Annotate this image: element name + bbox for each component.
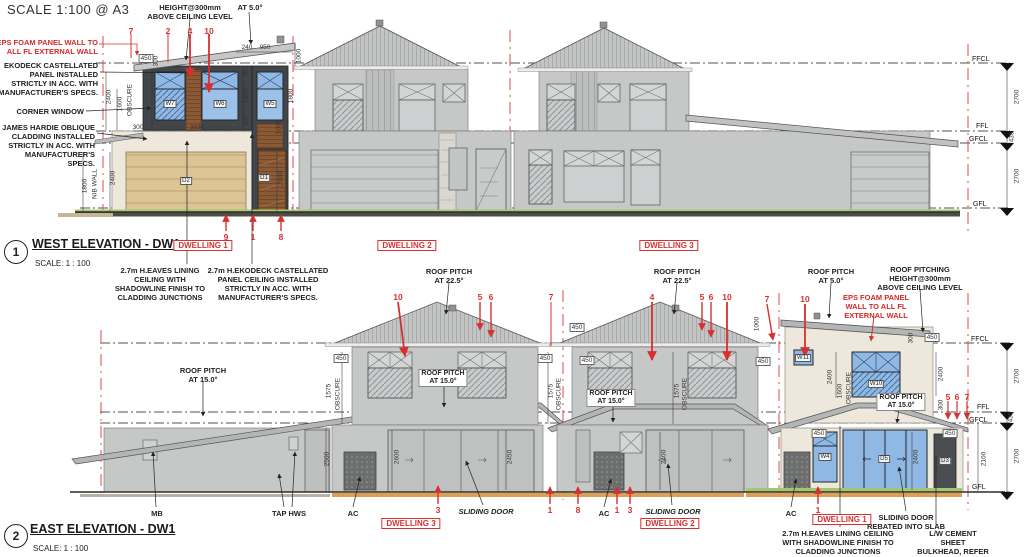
marker-number: 5	[478, 292, 483, 302]
marker-number: 7	[965, 392, 970, 402]
annotation-note: 2.7m H.EAVES LINING CEILING WITH SHADOWL…	[782, 529, 894, 556]
dimension-label: 300	[153, 56, 160, 67]
annotation-note: ROOF PITCH AT 22.5°	[426, 267, 472, 285]
level-label: FFL	[977, 404, 989, 411]
dwelling-label: DWELLING 1	[812, 514, 871, 525]
dimension-label: 1575	[326, 384, 333, 398]
dimension-label: 450	[812, 429, 827, 438]
dimension-label: 2700	[1014, 369, 1021, 383]
annotation-note: AC	[348, 509, 359, 518]
window-door-tag: W11	[795, 354, 811, 362]
annotation-note: AC	[786, 509, 797, 518]
dimension-label: 1800	[82, 179, 89, 193]
level-label: GFL	[972, 484, 986, 491]
dimension-label: 2400	[913, 450, 920, 464]
marker-number: 7	[765, 294, 770, 304]
dimension-label: 300	[243, 66, 250, 77]
window-door-tag: W7	[164, 100, 177, 108]
dimension-label: 1035	[276, 120, 283, 134]
dimension-label: 450	[580, 356, 595, 365]
marker-number: 4	[650, 292, 655, 302]
window-door-tag: D5	[878, 455, 890, 463]
dimension-label: 450	[756, 357, 771, 366]
elevation-drawing-sheet: SCALE 1:100 @ A3 1 WEST ELEVATION - DW1 …	[0, 0, 1027, 557]
dimension-label: OBSCURE	[556, 378, 563, 410]
dimension-label: 1000	[754, 317, 761, 331]
level-label: FFCL	[971, 336, 989, 343]
dimension-label: 300	[938, 400, 945, 411]
dimension-label: NIB WALL	[92, 169, 99, 199]
west-elevation-drawing	[58, 12, 1014, 264]
annotation-note: 2.7m H.EKODECK CASTELLATED PANEL CEILING…	[208, 266, 329, 302]
west-elevation-scale: SCALE: 1 : 100	[35, 259, 90, 268]
sheet-scale-header: SCALE 1:100 @ A3	[7, 2, 129, 17]
west-drawing-number: 1	[4, 240, 28, 264]
east-elevation-scale: SCALE: 1 : 100	[33, 544, 88, 553]
marker-number: 10	[204, 26, 213, 36]
annotation-note: ROOF PITCH AT 15.0°	[418, 369, 467, 387]
window-door-tag: D1	[258, 174, 270, 182]
marker-number: 1	[548, 505, 553, 515]
dimension-label: 450	[570, 323, 585, 332]
dimension-label: 435	[1009, 132, 1016, 143]
marker-number: 8	[576, 505, 581, 515]
annotation-note: JAMES HARDIE OBLIQUE CLADDING INSTALLED …	[2, 123, 95, 168]
dimension-label: 450	[538, 354, 553, 363]
level-label: GFL	[973, 201, 987, 208]
dimension-label: 2400	[110, 171, 117, 185]
dimension-label: 450	[925, 333, 940, 342]
dimension-label: 450	[943, 429, 958, 438]
dimension-label: 3830	[190, 124, 204, 131]
annotation-note: ROOF PITCH AT 15.0°	[180, 366, 226, 384]
dimension-label: OBSCURE	[335, 378, 342, 410]
annotation-note: AT 5.0°	[238, 3, 263, 12]
annotation-note: EKODECK CASTELLATED PANEL INSTALLED STRI…	[0, 61, 98, 97]
annotation-note: ROOF PITCH AT 22.5°	[654, 267, 700, 285]
dimension-label: 2600	[394, 450, 401, 464]
annotation-note: ROOF PITCHING HEIGHT@300mm ABOVE CEILING…	[877, 265, 962, 292]
annotation-note: ROOF PITCH AT 15.0°	[876, 393, 925, 411]
marker-number: 5	[946, 392, 951, 402]
marker-number: 6	[709, 292, 714, 302]
marker-number: 6	[489, 292, 494, 302]
dimension-label: 2100	[981, 452, 988, 466]
window-door-tag: W5	[264, 100, 277, 108]
level-label: FFL	[976, 123, 988, 130]
west-elevation-title: WEST ELEVATION - DW1	[32, 237, 180, 251]
dimension-label: 1800	[243, 89, 250, 103]
level-label: GFCL	[969, 417, 988, 424]
window-door-tag: W4	[819, 453, 832, 461]
annotation-note: EPS FOAM PANEL WALL TO ALL FL EXTERNAL W…	[0, 38, 98, 56]
dimension-label: 1000	[296, 49, 303, 63]
dwelling-2-west	[294, 20, 511, 211]
dimension-label: 435	[1008, 412, 1015, 423]
dimension-label: 1600	[837, 384, 844, 398]
dimension-label: OBSCURE	[127, 84, 134, 116]
marker-number: 1	[615, 505, 620, 515]
level-label: GFCL	[969, 136, 988, 143]
east-elevation-title: EAST ELEVATION - DW1	[30, 522, 175, 536]
dimension-label: OBSCURE	[846, 372, 853, 404]
annotation-note: L/W CEMENT SHEET BULKHEAD, REFER TO PLAN…	[916, 529, 990, 557]
dwelling-label: DWELLING 2	[640, 518, 699, 529]
dimension-label: 2700	[1014, 90, 1021, 104]
marker-number: 5	[700, 292, 705, 302]
marker-number: 4	[188, 26, 193, 36]
dimension-label: 450	[139, 54, 154, 63]
dimension-label: 300	[133, 124, 144, 131]
annotation-note: MB	[151, 509, 163, 518]
dimension-label: 300	[243, 116, 250, 127]
marker-number: 3	[436, 505, 441, 515]
level-label: FFCL	[972, 56, 990, 63]
dimension-label: 2450	[507, 450, 514, 464]
marker-number: 6	[955, 392, 960, 402]
marker-number: 7	[129, 26, 134, 36]
marker-number: 8	[279, 232, 284, 242]
annotation-note: ROOF PITCH AT 15.0°	[586, 389, 635, 407]
fixture-label: SLIDING DOOR	[645, 507, 700, 516]
dwelling-label: DWELLING 3	[639, 240, 698, 251]
fixture-label: SLIDING DOOR	[458, 507, 513, 516]
annotation-note: HEIGHT@300mm ABOVE CEILING LEVEL	[147, 3, 232, 21]
dimension-label: 240	[242, 44, 253, 51]
annotation-note: EPS FOAM PANEL WALL TO ALL FL EXTERNAL W…	[843, 293, 909, 320]
marker-number: 1	[251, 232, 256, 242]
annotation-note: 2.7m H.EAVES LINING CEILING WITH SHADOWL…	[115, 266, 205, 302]
window-door-tag: W10	[868, 380, 884, 388]
dimension-label: 950	[260, 44, 271, 51]
dimension-label: 1575	[548, 384, 555, 398]
marker-number: 10	[800, 294, 809, 304]
dwelling-label: DWELLING 1	[173, 240, 232, 251]
dwelling-label: DWELLING 2	[377, 240, 436, 251]
dimension-label: 300	[908, 333, 915, 344]
dwelling-3-east	[325, 302, 550, 492]
window-door-tag: W6	[214, 100, 227, 108]
marker-number: 10	[393, 292, 402, 302]
marker-number: 7	[549, 292, 554, 302]
dimension-label: 2700	[1014, 169, 1021, 183]
dwelling-label: DWELLING 3	[381, 518, 440, 529]
dimension-label: 2400	[661, 450, 668, 464]
marker-number: 10	[722, 292, 731, 302]
dimension-label: OBSCURE	[682, 378, 689, 410]
dimension-label: 2400	[938, 367, 945, 381]
east-drawing-number: 2	[4, 524, 28, 548]
dimension-label: 2400	[278, 171, 285, 185]
dimension-label: 1600	[117, 97, 124, 111]
dimension-label: 2500	[324, 452, 331, 466]
dimension-label: 2400	[106, 90, 113, 104]
annotation-note: CORNER WINDOW	[17, 107, 85, 116]
annotation-note: AC	[599, 509, 610, 518]
annotation-note: ROOF PITCH AT 5.0°	[808, 267, 854, 285]
dimension-label: 1800	[288, 89, 295, 103]
dimension-label: 450	[334, 354, 349, 363]
dwelling-3-west	[514, 22, 958, 211]
window-door-tag: D2	[180, 177, 192, 185]
dimension-label: 1575	[674, 384, 681, 398]
marker-number: 2	[166, 26, 171, 36]
window-door-tag: D3	[939, 457, 951, 465]
marker-number: 3	[628, 505, 633, 515]
annotation-note: TAP HWS	[272, 509, 306, 518]
dimension-label: 2400	[827, 370, 834, 384]
dimension-label: 2700	[1014, 449, 1021, 463]
